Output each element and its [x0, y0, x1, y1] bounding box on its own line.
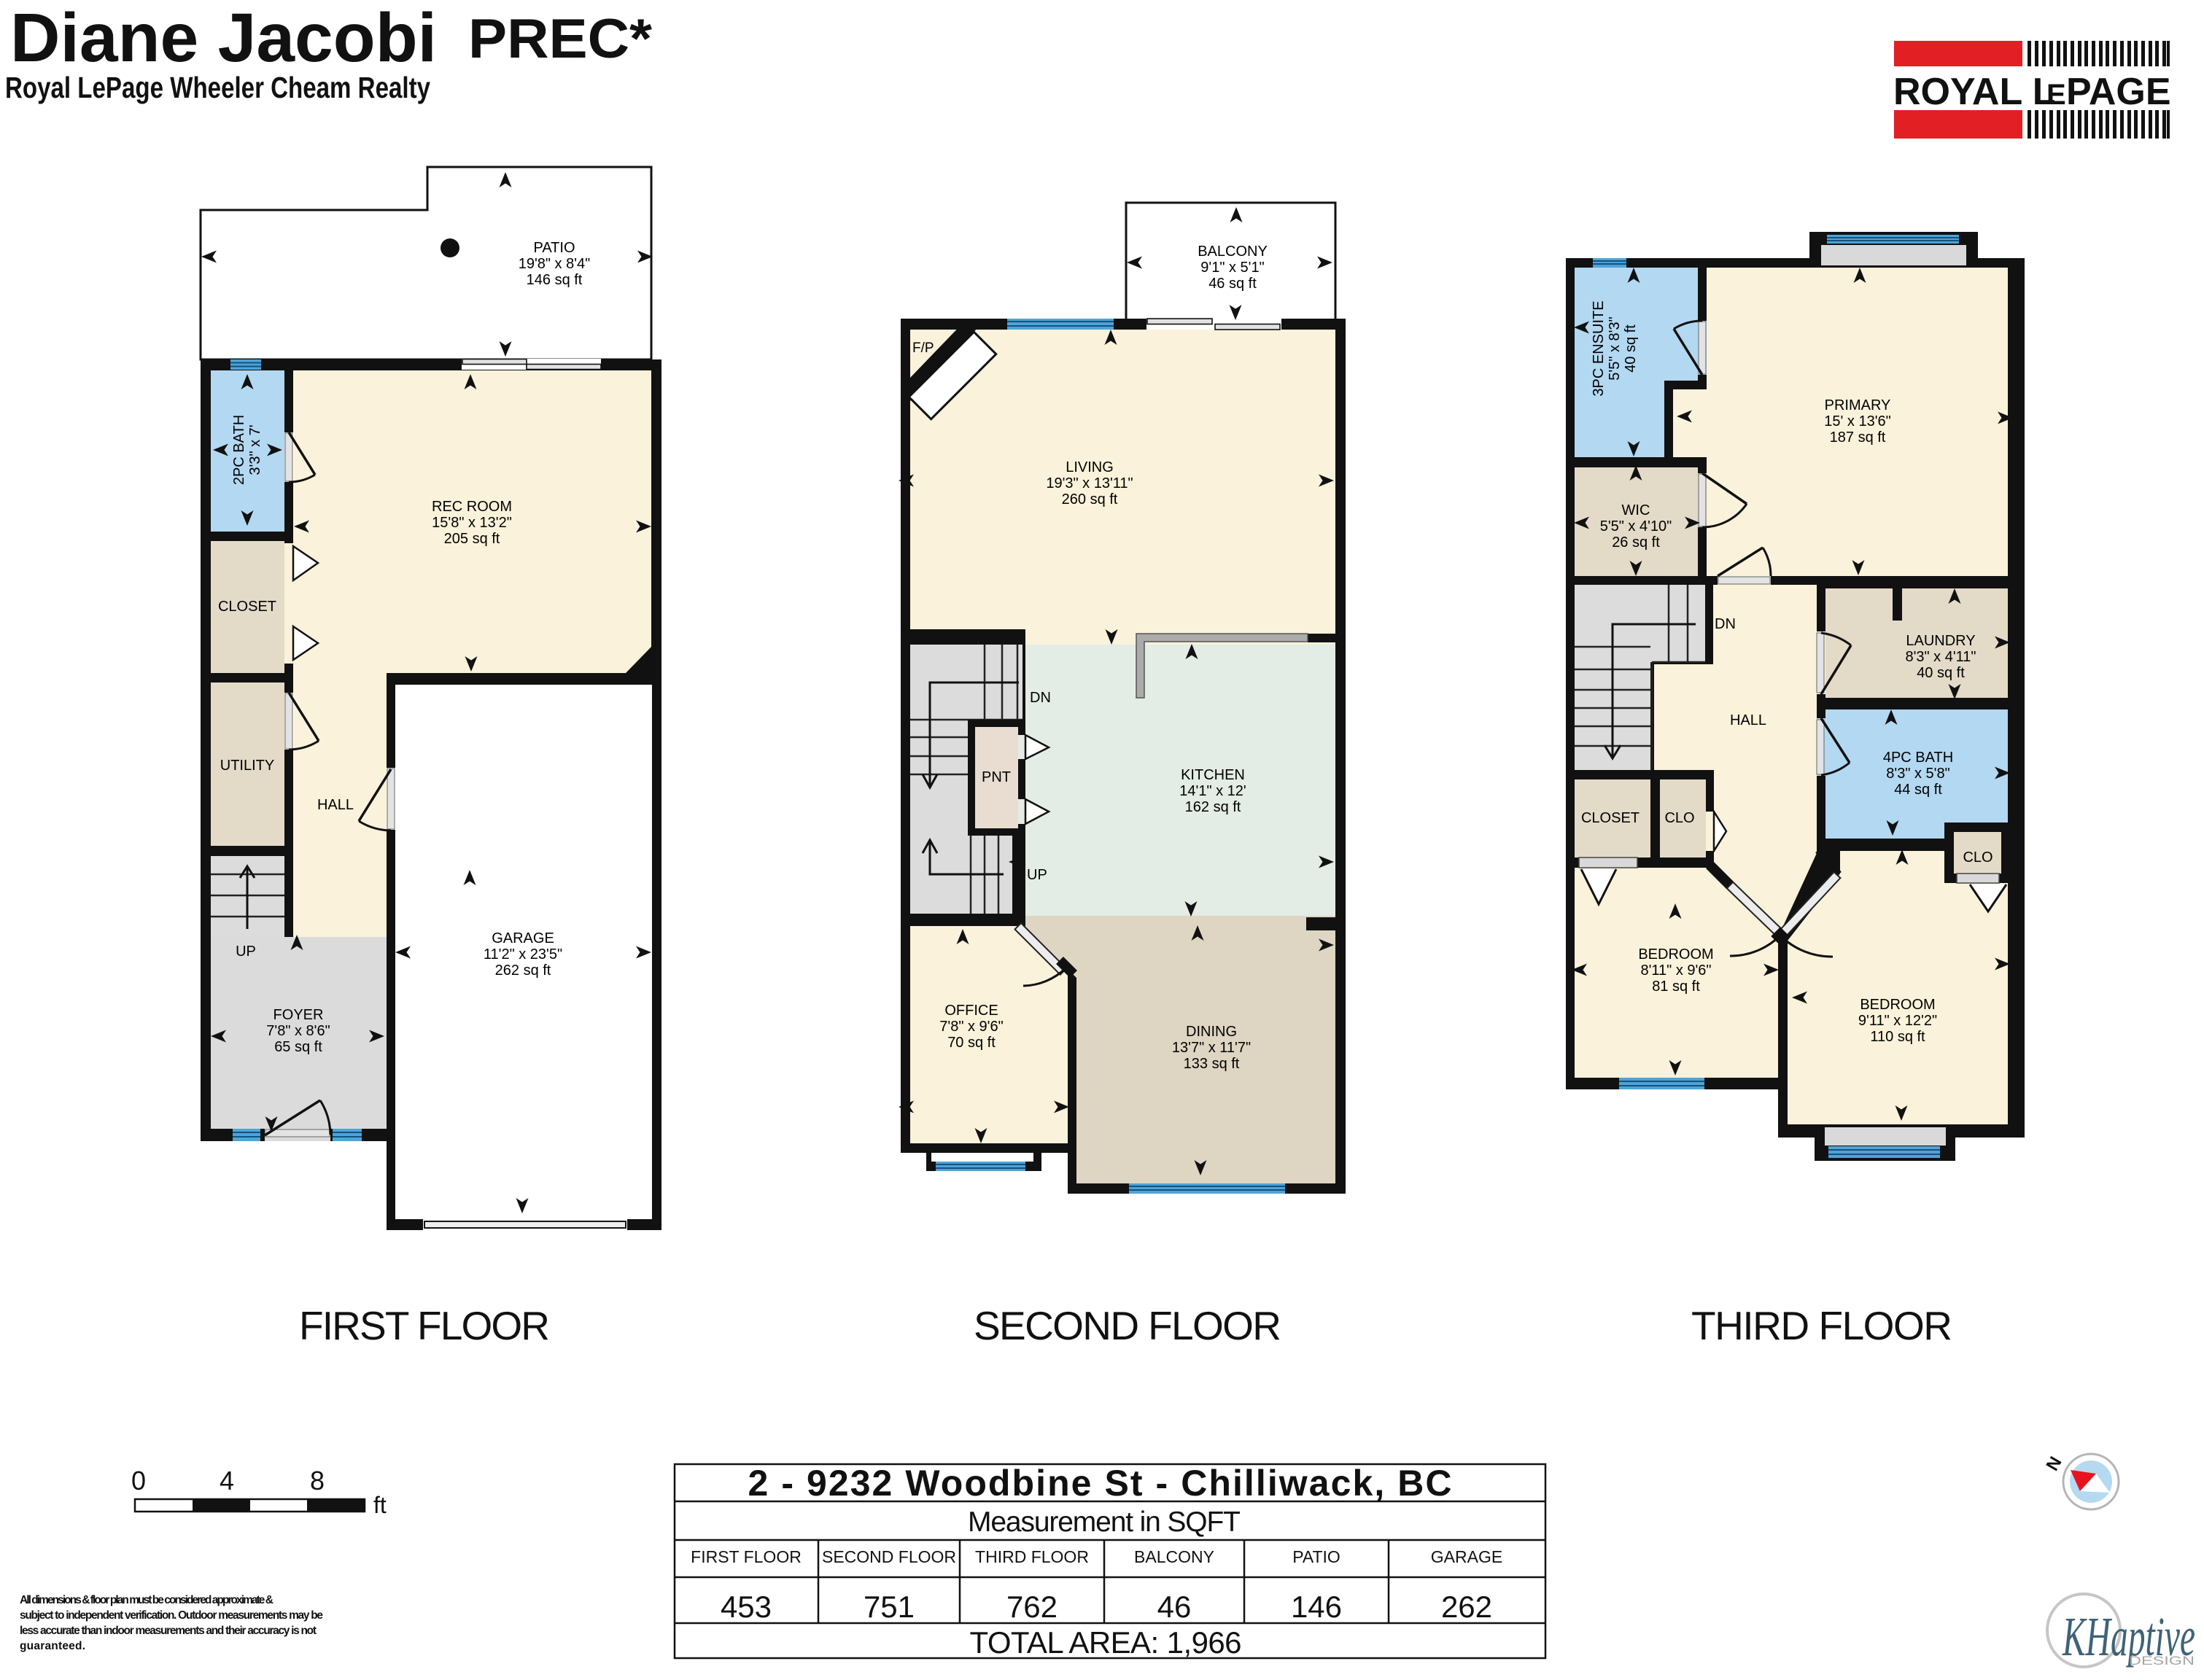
svg-text:14'1" x 12': 14'1" x 12'	[1179, 783, 1246, 799]
svg-text:SECOND FLOOR: SECOND FLOOR	[822, 1547, 956, 1566]
svg-text:Diane Jacobi: Diane Jacobi	[10, 0, 437, 77]
svg-text:205 sq ft: 205 sq ft	[444, 531, 500, 547]
svg-text:9'11" x 12'2": 9'11" x 12'2"	[1858, 1013, 1937, 1029]
svg-text:15' x 13'6": 15' x 13'6"	[1824, 413, 1890, 429]
svg-text:2PC BATH: 2PC BATH	[231, 415, 247, 485]
svg-text:LIVING: LIVING	[1066, 459, 1114, 475]
svg-text:PAGE: PAGE	[2066, 71, 2171, 113]
svg-text:REC ROOM: REC ROOM	[432, 499, 512, 515]
svg-text:146 sq ft: 146 sq ft	[527, 272, 583, 288]
svg-text:3PC ENSUITE: 3PC ENSUITE	[1591, 300, 1607, 396]
svg-text:BEDROOM: BEDROOM	[1860, 997, 1935, 1013]
svg-text:PATIO: PATIO	[533, 240, 575, 256]
svg-text:0: 0	[131, 1466, 146, 1496]
svg-text:GARAGE: GARAGE	[492, 930, 554, 946]
svg-text:11'2" x 23'5": 11'2" x 23'5"	[484, 946, 562, 962]
svg-text:UP: UP	[1027, 867, 1047, 883]
svg-text:FOYER: FOYER	[273, 1007, 324, 1023]
svg-text:HALL: HALL	[317, 797, 354, 813]
svg-text:19'8" x 8'4": 19'8" x 8'4"	[519, 256, 591, 272]
svg-text:146: 146	[1291, 1590, 1342, 1624]
svg-text:BALCONY: BALCONY	[1198, 244, 1268, 260]
svg-text:LAUNDRY: LAUNDRY	[1906, 633, 1975, 649]
svg-text:453: 453	[721, 1590, 772, 1624]
svg-text:THIRD FLOOR: THIRD FLOOR	[975, 1547, 1089, 1566]
svg-text:762: 762	[1006, 1590, 1058, 1624]
svg-text:133 sq ft: 133 sq ft	[1184, 1056, 1240, 1072]
svg-text:8'11" x 9'6": 8'11" x 9'6"	[1640, 962, 1711, 979]
svg-text:UTILITY: UTILITY	[220, 758, 274, 774]
svg-text:110 sq ft: 110 sq ft	[1870, 1029, 1925, 1045]
svg-text:KITCHEN: KITCHEN	[1181, 767, 1245, 783]
svg-text:WIC: WIC	[1622, 502, 1650, 518]
svg-text:DINING: DINING	[1186, 1024, 1237, 1040]
svg-text:7'8" x 8'6": 7'8" x 8'6"	[266, 1023, 330, 1039]
svg-text:CLO: CLO	[1963, 849, 1992, 866]
svg-text:PATIO: PATIO	[1292, 1547, 1340, 1566]
svg-text:46: 46	[1157, 1590, 1192, 1624]
svg-text:DN: DN	[1715, 616, 1736, 632]
svg-text:TOTAL AREA: 1,966: TOTAL AREA: 1,966	[970, 1625, 1242, 1660]
svg-text:BALCONY: BALCONY	[1134, 1547, 1214, 1566]
svg-text:751: 751	[864, 1590, 915, 1624]
svg-text:F/P: F/P	[912, 341, 934, 356]
svg-text:13'7" x 11'7": 13'7" x 11'7"	[1172, 1040, 1251, 1056]
svg-text:DN: DN	[1030, 690, 1051, 706]
svg-text:ft: ft	[373, 1492, 387, 1518]
svg-text:SECOND FLOOR: SECOND FLOOR	[974, 1303, 1281, 1348]
svg-text:40 sq ft: 40 sq ft	[1917, 665, 1965, 681]
svg-text:8'3" x 5'8": 8'3" x 5'8"	[1886, 766, 1949, 782]
svg-text:DESIGN: DESIGN	[2129, 1654, 2195, 1668]
svg-text:40 sq ft: 40 sq ft	[1623, 324, 1639, 373]
svg-text:7'8" x 9'6": 7'8" x 9'6"	[939, 1019, 1003, 1035]
svg-text:262: 262	[1441, 1590, 1492, 1624]
svg-text:THIRD FLOOR: THIRD FLOOR	[1691, 1303, 1952, 1348]
svg-text:GARAGE: GARAGE	[1431, 1547, 1502, 1566]
svg-text:CLO: CLO	[1664, 810, 1694, 826]
svg-text:UP: UP	[236, 944, 256, 960]
svg-text:guaranteed.: guaranteed.	[20, 1640, 85, 1652]
svg-text:162 sq ft: 162 sq ft	[1185, 799, 1241, 815]
svg-text:26 sq ft: 26 sq ft	[1612, 534, 1660, 551]
svg-text:5'5" x 8'3": 5'5" x 8'3"	[1607, 316, 1623, 380]
svg-text:ROYAL L: ROYAL L	[1893, 71, 2056, 113]
svg-text:15'8" x 13'2": 15'8" x 13'2"	[432, 515, 512, 531]
svg-text:HALL: HALL	[1730, 712, 1766, 728]
svg-text:FIRST FLOOR: FIRST FLOOR	[299, 1303, 550, 1348]
svg-text:PRIMARY: PRIMARY	[1825, 397, 1891, 413]
svg-text:19'3" x 13'11": 19'3" x 13'11"	[1046, 475, 1133, 491]
svg-text:FIRST FLOOR: FIRST FLOOR	[691, 1547, 802, 1566]
svg-text:PREC*: PREC*	[468, 8, 652, 70]
svg-text:65 sq ft: 65 sq ft	[274, 1039, 322, 1055]
svg-text:All dimensions & floor plan mu: All dimensions & floor plan must be cons…	[20, 1594, 273, 1606]
svg-text:262 sq ft: 262 sq ft	[495, 962, 551, 979]
svg-text:187 sq ft: 187 sq ft	[1830, 429, 1886, 446]
svg-text:Measurement in SQFT: Measurement in SQFT	[968, 1506, 1241, 1538]
svg-text:CLOSET: CLOSET	[1581, 810, 1640, 826]
svg-text:Royal LePage Wheeler Cheam Rea: Royal LePage Wheeler Cheam Realty	[5, 71, 430, 104]
svg-text:81 sq ft: 81 sq ft	[1652, 979, 1700, 995]
svg-text:PNT: PNT	[982, 769, 1011, 785]
svg-text:70 sq ft: 70 sq ft	[947, 1035, 996, 1051]
svg-text:9'1" x 5'1": 9'1" x 5'1"	[1200, 260, 1264, 276]
svg-text:CLOSET: CLOSET	[218, 599, 276, 615]
svg-text:E: E	[2046, 79, 2066, 111]
svg-text:260 sq ft: 260 sq ft	[1062, 491, 1118, 507]
svg-text:8'3" x 4'11": 8'3" x 4'11"	[1905, 649, 1976, 665]
svg-text:44 sq ft: 44 sq ft	[1894, 782, 1942, 798]
svg-text:2 - 9232 Woodbine St - Chilliw: 2 - 9232 Woodbine St - Chilliwack, BC	[748, 1463, 1452, 1504]
svg-text:BEDROOM: BEDROOM	[1638, 946, 1713, 962]
svg-text:subject to independent verific: subject to independent verification. Out…	[20, 1609, 323, 1622]
svg-text:5'5" x 4'10": 5'5" x 4'10"	[1600, 518, 1672, 534]
svg-text:3'3" x 7': 3'3" x 7'	[247, 424, 263, 475]
svg-text:N: N	[2043, 1453, 2066, 1474]
svg-text:OFFICE: OFFICE	[944, 1003, 998, 1019]
svg-text:8: 8	[310, 1466, 325, 1496]
svg-text:4PC BATH: 4PC BATH	[1883, 750, 1953, 766]
svg-text:4: 4	[220, 1466, 234, 1496]
svg-text:less accurate than indoor meas: less accurate than indoor measurements a…	[20, 1625, 317, 1637]
svg-text:46 sq ft: 46 sq ft	[1208, 276, 1257, 292]
